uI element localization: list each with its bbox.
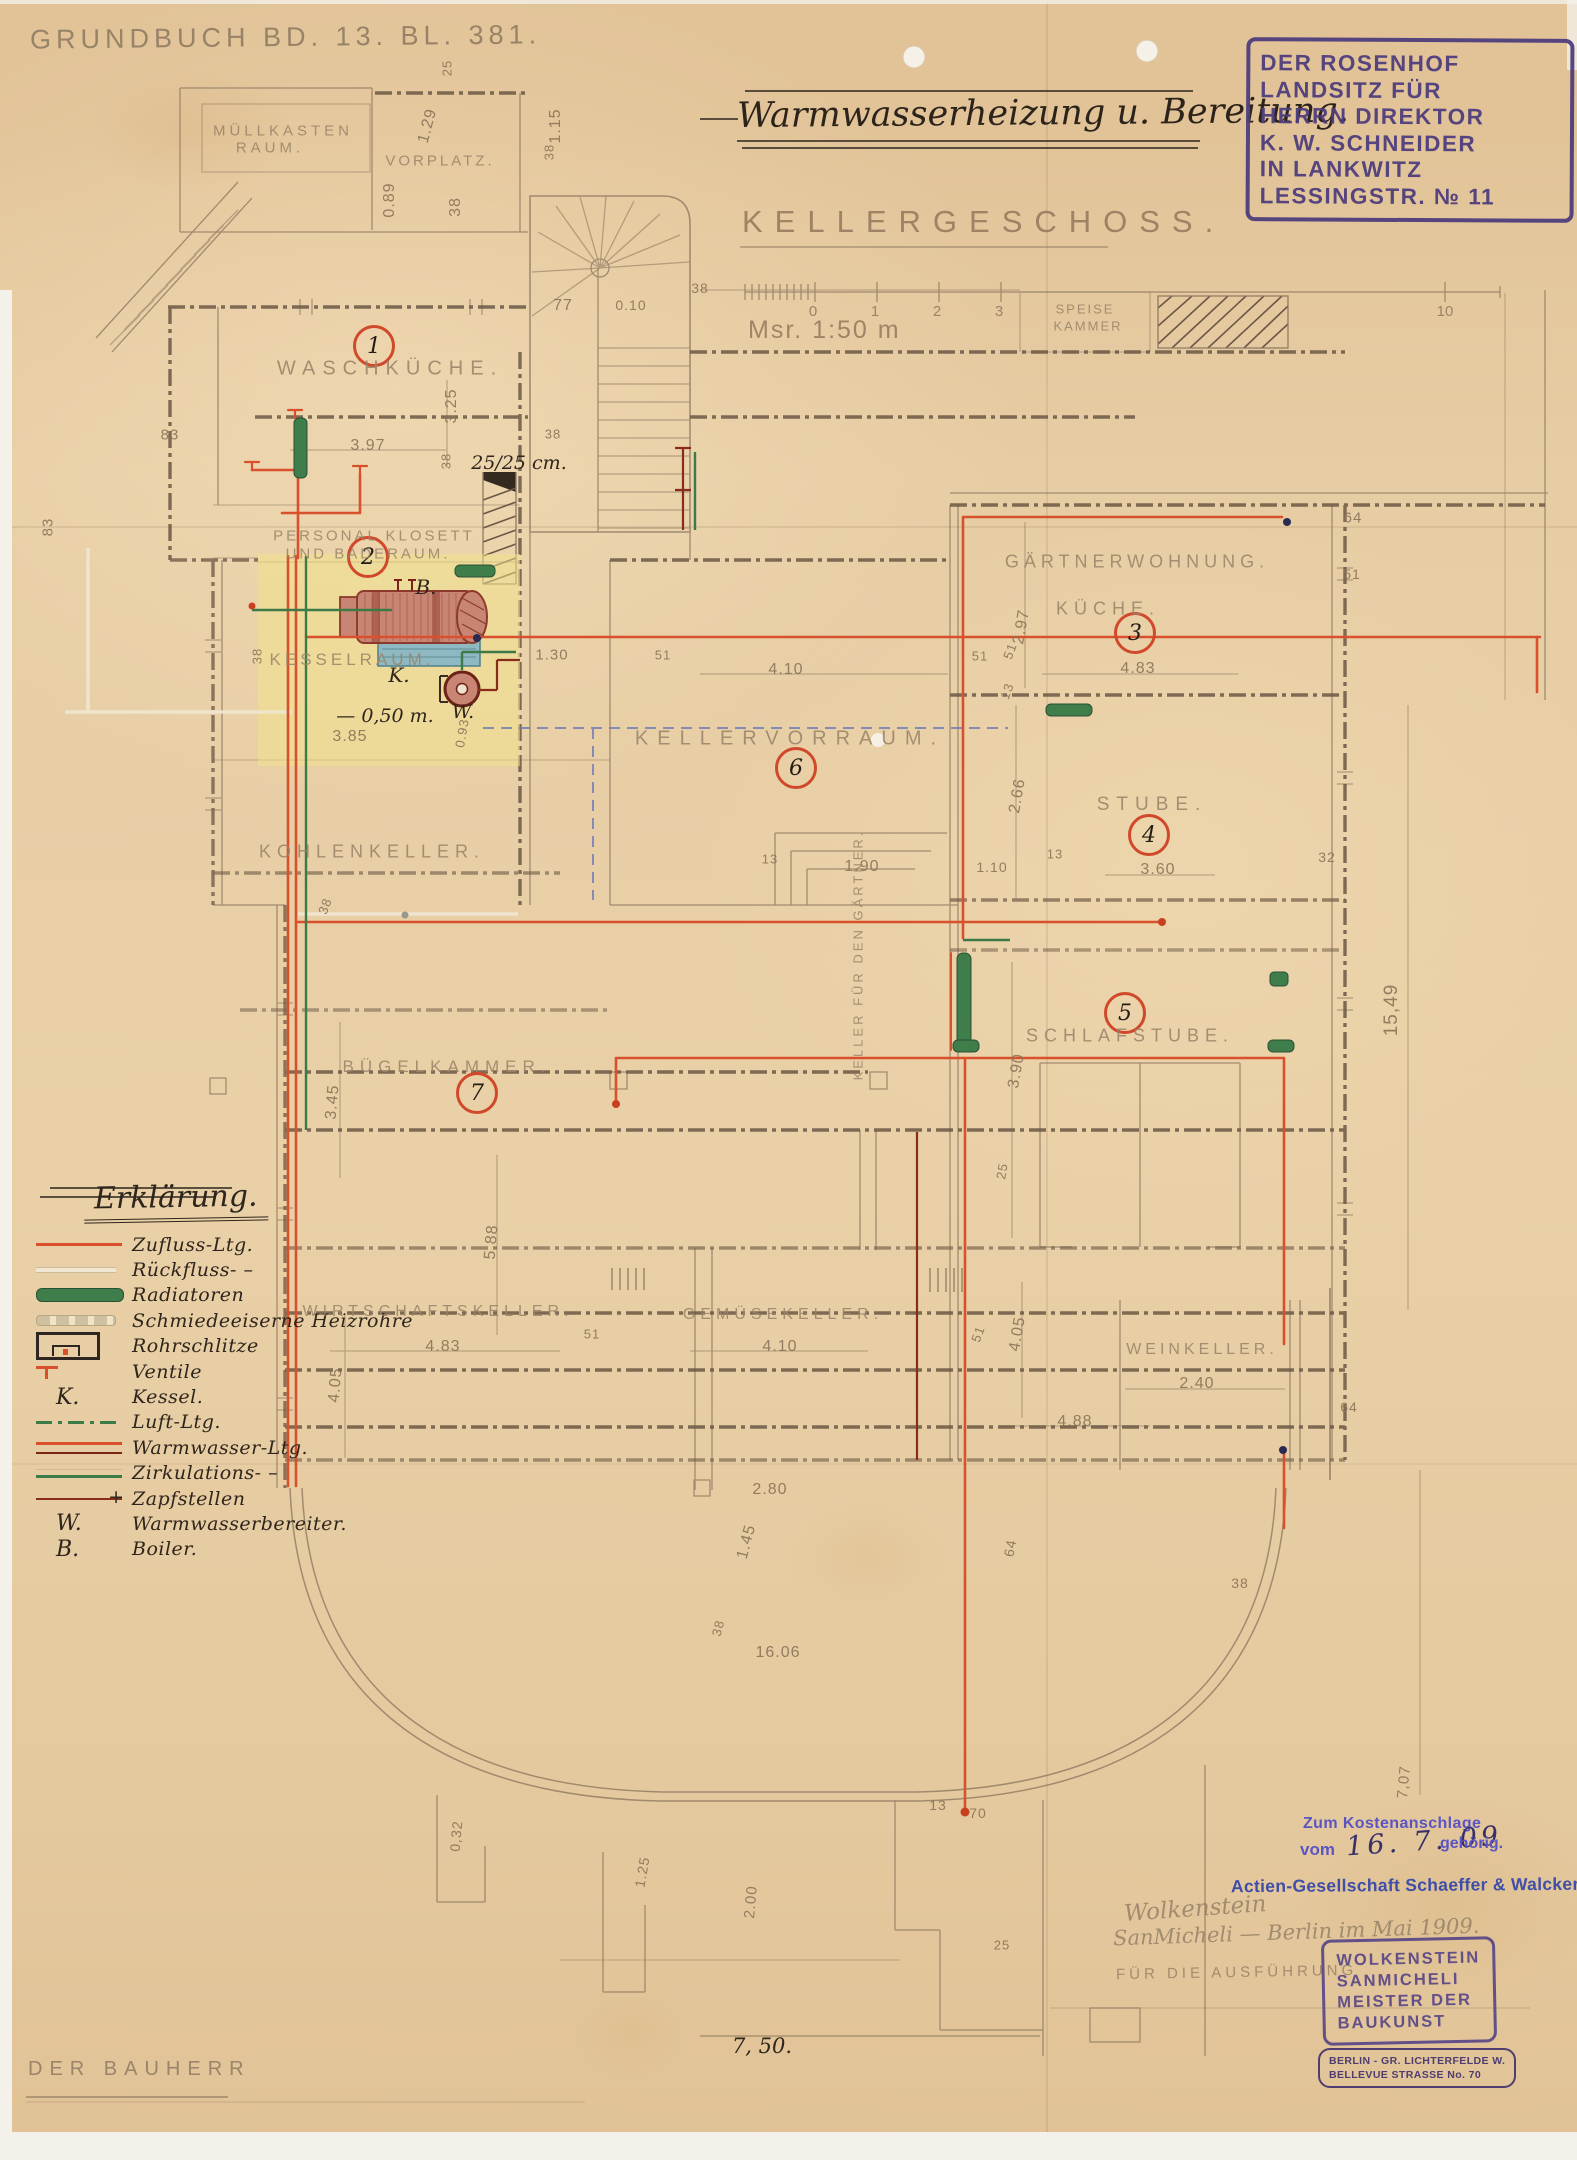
- dimension-label: 2.80: [752, 1481, 787, 1499]
- dimension-label: 25: [994, 1938, 1010, 1953]
- legend-symbol-cell: [36, 1332, 132, 1360]
- ink-annotation: 7, 50.: [732, 2034, 792, 2058]
- room-label: Waschküche.: [277, 358, 503, 381]
- legend-item-label: Zufluss-Ltg.: [132, 1234, 253, 1256]
- legend-item-label: Radiatoren: [132, 1284, 244, 1306]
- pencil-lines: [26, 88, 1548, 2102]
- scale-tick-label: 1: [871, 303, 879, 320]
- legend-symbol-cell: [36, 1268, 132, 1272]
- owner-stamp: DER ROSENHOFLANDSITZ FÜRHERRN DIREKTORK.…: [1246, 37, 1575, 223]
- owner-stamp-line: IN LANKWITZ: [1260, 156, 1562, 184]
- dimension-label: 25: [993, 1162, 1011, 1181]
- legend-item: Zirkulations- –: [36, 1461, 396, 1486]
- room-label: Kammer: [1053, 319, 1122, 334]
- owner-stamp-line: DER ROSENHOF: [1260, 50, 1562, 78]
- dimension-label: 64: [1340, 1399, 1358, 1415]
- legend-item-label: Zirkulations- –: [132, 1462, 278, 1484]
- dimension-label: 83: [40, 518, 57, 537]
- line-ghost-icon: [36, 1268, 116, 1272]
- room-label: Gemüsekeller.: [683, 1306, 883, 1324]
- dimension-label: 4.83: [425, 1338, 460, 1356]
- legend-title: Erklärung.: [84, 1178, 268, 1223]
- dimension-label: 0,32: [447, 1820, 466, 1853]
- legend-symbol-cell: W.: [36, 1511, 132, 1536]
- dimension-label: 4.10: [768, 661, 803, 679]
- dimension-label: 7,07: [1394, 1765, 1414, 1800]
- dimension-label: 51: [655, 648, 671, 663]
- room-label: Raum.: [236, 140, 304, 157]
- bar-gray-icon: [36, 1315, 116, 1326]
- ink-annotation: — 0,50 m.: [336, 705, 433, 727]
- room-label: Weinkeller.: [1126, 1341, 1278, 1359]
- legend-symbol-cell: [36, 1288, 132, 1302]
- legend-item: Zufluss-Ltg.: [36, 1232, 396, 1257]
- dimension-label: 51: [972, 649, 988, 664]
- dimension-label: 1.15: [547, 108, 565, 143]
- legend-item-label: Zapfstellen: [132, 1488, 246, 1510]
- room-label: Küche.: [1056, 599, 1160, 620]
- legend-item: Luft-Ltg.: [36, 1410, 396, 1435]
- address-stamp: BERLIN - GR. LICHTERFELDE W.BELLEVUE STR…: [1318, 2048, 1516, 2088]
- scale-label: Msr. 1:50 m: [748, 316, 901, 345]
- line-red-dark-icon: [36, 1442, 122, 1454]
- dimension-label: 4.10: [762, 1338, 797, 1356]
- dimension-label: 38: [545, 427, 561, 442]
- drawing-title: Warmwasserheizung u. Bereitung.: [737, 92, 1205, 136]
- ink-annotation: K.: [388, 663, 409, 687]
- dimension-label: 1.10: [976, 859, 1007, 875]
- ink-annotation: B.: [415, 575, 436, 599]
- owner-stamp-line: K. W. SCHNEIDER: [1260, 130, 1562, 158]
- dimension-label: 15,49: [1381, 984, 1403, 1037]
- master-stamp-line: SANMICHELI: [1337, 1968, 1481, 1992]
- room-label: und Baderaum.: [286, 546, 451, 563]
- dimension-label: 38: [691, 280, 709, 296]
- dimension-label: 38: [439, 453, 454, 469]
- legend-symbol-cell: B.: [36, 1537, 132, 1562]
- master-stamp-line: WOLKENSTEIN: [1336, 1948, 1480, 1972]
- dimension-label: 3.85: [332, 728, 367, 746]
- dimension-label: 16.06: [755, 1644, 800, 1662]
- dimension-label: 4.88: [1057, 1413, 1092, 1431]
- legend-symbol-cell: K.: [36, 1385, 132, 1410]
- dimension-label: 25: [440, 60, 455, 76]
- tap-icon: [36, 1498, 122, 1500]
- dimension-label: 3.60: [1140, 861, 1175, 879]
- room-label: Stube.: [1097, 794, 1208, 816]
- dimension-label: 32: [1318, 849, 1336, 865]
- legend-item: Rückfluss- –: [36, 1257, 396, 1282]
- legend-item: W.Warmwasserbereiter.: [36, 1511, 396, 1536]
- scale-tick-label: 10: [1437, 303, 1454, 320]
- scanned-heating-plan: Grundbuch Bd. 13. Bl. 381. Warmwasserhei…: [0, 0, 1577, 2160]
- dimension-label: 70: [969, 1805, 987, 1821]
- dimension-label: 4.83: [1120, 660, 1155, 678]
- room-label: Schlafstube.: [1026, 1026, 1234, 1047]
- address-stamp-line: BELLEVUE STRASSE No. 70: [1329, 2068, 1505, 2082]
- room-label: Müllkasten: [213, 123, 353, 140]
- dimension-label: 2.40: [1179, 1375, 1214, 1393]
- legend-item-label: Kessel.: [132, 1386, 203, 1408]
- dimension-label: 1.90: [844, 858, 879, 876]
- dimension-label: 64: [1001, 1538, 1020, 1558]
- dimension-label: 3.97: [350, 437, 385, 455]
- legend-item: B.Boiler.: [36, 1537, 396, 1562]
- legend-item: Warmwasser-Ltg.: [36, 1435, 396, 1460]
- dimension-label: 51: [1343, 566, 1361, 582]
- legend-item-label: Luft-Ltg.: [132, 1411, 221, 1433]
- legend-item-label: Rohrschlitze: [132, 1335, 259, 1357]
- cost-estimate-stamp-gehoerig: gehörig.: [1440, 1835, 1503, 1853]
- scale-tick-label: 0: [809, 303, 817, 320]
- master-stamp-line: MEISTER DER: [1337, 1989, 1481, 2013]
- legend-symbol-cell: [36, 1243, 132, 1246]
- legend-item-label: Boiler.: [132, 1538, 197, 1560]
- slit-icon: [36, 1332, 100, 1360]
- dimension-label: 38: [447, 197, 465, 217]
- legend-letter-symbol: W.: [36, 1511, 82, 1536]
- dimension-label: 64: [1344, 510, 1363, 527]
- line-green-icon: [36, 1469, 122, 1478]
- bauherr-label: Der Bauherr: [28, 2058, 251, 2081]
- ink-annotation: W.: [452, 701, 474, 723]
- cost-estimate-stamp-vom: vom: [1300, 1840, 1335, 1860]
- legend-symbol-cell: [36, 1442, 132, 1454]
- dimension-label: 83: [161, 427, 180, 444]
- firm-stamp: Actien-Gesellschaft Schaeffer & Walcker: [1231, 1874, 1577, 1897]
- room-label: Vorplatz.: [385, 153, 494, 170]
- dimension-label: 38: [1231, 1575, 1249, 1591]
- address-stamp-line: BERLIN - GR. LICHTERFELDE W.: [1329, 2054, 1505, 2068]
- dimension-label: 3.25: [443, 388, 461, 423]
- dimension-label: 1.30: [535, 647, 568, 664]
- legend-letter-symbol: B.: [36, 1537, 79, 1562]
- room-label: Kellervorraum.: [635, 728, 945, 751]
- room-label: Kohlenkeller.: [259, 842, 485, 863]
- dashdot-green-icon: [36, 1421, 122, 1424]
- dimension-label: 38: [250, 648, 265, 664]
- room-label: Bügelkammer.: [343, 1057, 552, 1077]
- grundbuch-note: Grundbuch Bd. 13. Bl. 381.: [30, 19, 541, 55]
- legend-item-label: Ventile: [132, 1361, 202, 1383]
- legend-letter-symbol: K.: [36, 1385, 79, 1410]
- dimension-label: 13: [762, 852, 778, 867]
- legend-symbol-cell: [36, 1363, 132, 1381]
- owner-stamp-line: HERRN DIREKTOR: [1260, 103, 1562, 131]
- legend-item: Rohrschlitze: [36, 1334, 396, 1359]
- dimension-label: 77: [553, 297, 573, 315]
- dimension-label: 0.89: [381, 182, 399, 217]
- valve-icon: [36, 1363, 62, 1381]
- dimension-label: 51: [584, 1327, 600, 1342]
- dimension-label: 38: [542, 144, 557, 160]
- bar-green-icon: [36, 1288, 124, 1302]
- owner-stamp-line: LESSINGSTR. № 11: [1260, 183, 1562, 211]
- scale-tick-label: 3: [995, 303, 1003, 320]
- master-builder-stamp: WOLKENSTEINSANMICHELIMEISTER DERBAUKUNST: [1321, 1936, 1497, 2046]
- legend-item: Zapfstellen: [36, 1486, 396, 1511]
- dimension-label: 13: [929, 1797, 947, 1813]
- legend-symbol-cell: [36, 1315, 132, 1326]
- legend-symbol-cell: [36, 1498, 132, 1500]
- room-number-badge: 6: [775, 747, 817, 789]
- line-red-icon: [36, 1243, 122, 1246]
- ink-annotation: 25/25 cm.: [471, 452, 567, 474]
- legend-symbol-cell: [36, 1469, 132, 1478]
- master-stamp-line: BAUKUNST: [1337, 2010, 1481, 2034]
- dimension-label: 5.88: [482, 1224, 503, 1261]
- legend-item-label: Warmwasserbereiter.: [132, 1513, 347, 1535]
- dimension-label: 2.00: [741, 1885, 761, 1920]
- room-label: Wirtschaftskeller.: [302, 1303, 573, 1321]
- legend-symbol-cell: [36, 1421, 132, 1424]
- dimension-label: 13: [1047, 847, 1063, 862]
- dimension-label: 4.05: [326, 1367, 347, 1404]
- room-number-badge: 7: [456, 1072, 498, 1114]
- dimension-label: 3.45: [323, 1084, 344, 1121]
- room-number-badge: 4: [1128, 814, 1170, 856]
- legend-item-label: Rückfluss- –: [132, 1259, 254, 1281]
- room-label: Speise: [1056, 302, 1115, 317]
- scale-tick-label: 2: [933, 303, 941, 320]
- room-label: Personal Klosett: [273, 528, 475, 545]
- room-label: Gärtnerwohnung.: [1005, 552, 1269, 573]
- boiler-flange: [340, 597, 357, 637]
- owner-stamp-line: LANDSITZ FÜR: [1260, 77, 1562, 105]
- dimension-label: 0.10: [615, 297, 646, 313]
- floor-title: Kellergeschoss.: [742, 204, 1225, 240]
- legend-item-label: Warmwasser-Ltg.: [132, 1437, 308, 1459]
- room-label: Kesselraum.: [270, 650, 435, 670]
- air-duct-lines: [483, 728, 1008, 900]
